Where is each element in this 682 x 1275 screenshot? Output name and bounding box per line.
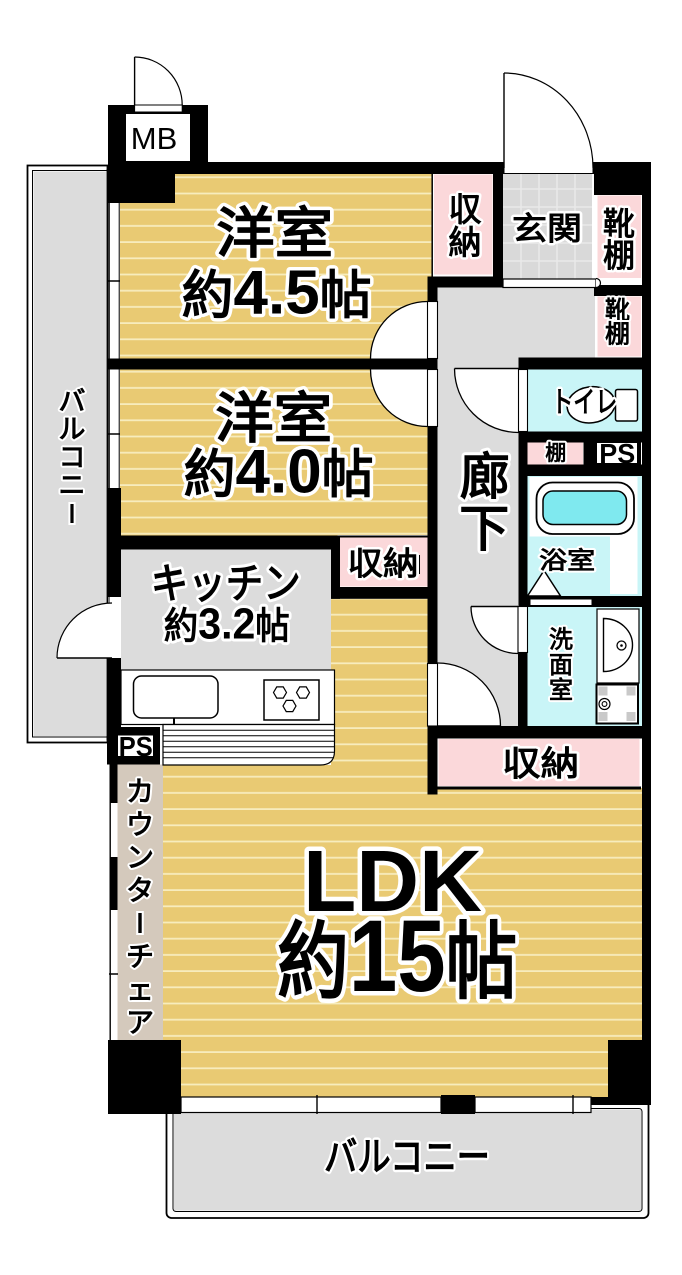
svg-text:納: 納 bbox=[449, 224, 482, 261]
svg-text:ル: ル bbox=[59, 415, 86, 445]
svg-text:洗: 洗 bbox=[549, 627, 573, 654]
svg-text:MB: MB bbox=[131, 121, 178, 156]
svg-text:ン: ン bbox=[126, 842, 154, 873]
svg-text:棚: 棚 bbox=[603, 238, 635, 274]
svg-text:約4.5帖: 約4.5帖 bbox=[182, 259, 372, 328]
svg-text:浴室: 浴室 bbox=[539, 546, 595, 574]
svg-text:ア: ア bbox=[126, 1007, 154, 1038]
svg-text:トイレ: トイレ bbox=[551, 387, 617, 419]
svg-text:棚: 棚 bbox=[605, 321, 630, 349]
svg-text:下: 下 bbox=[459, 501, 509, 557]
svg-text:室: 室 bbox=[549, 676, 573, 704]
svg-text:PS: PS bbox=[599, 438, 635, 469]
svg-text:バ: バ bbox=[59, 387, 86, 417]
svg-text:棚: 棚 bbox=[545, 441, 566, 465]
svg-text:約3.2帖: 約3.2帖 bbox=[164, 600, 290, 649]
svg-text:PS: PS bbox=[119, 731, 153, 762]
svg-text:ェ: ェ bbox=[126, 974, 154, 1005]
svg-text:面: 面 bbox=[549, 652, 573, 679]
svg-text:玄関: 玄関 bbox=[512, 210, 582, 246]
svg-text:カ: カ bbox=[126, 776, 154, 807]
svg-text:コ: コ bbox=[59, 443, 86, 473]
svg-text:約4.0帖: 約4.0帖 bbox=[184, 438, 374, 507]
svg-text:ニ: ニ bbox=[59, 471, 86, 501]
svg-text:洋室: 洋室 bbox=[216, 202, 333, 264]
svg-text:収納: 収納 bbox=[348, 546, 419, 582]
svg-text:チ: チ bbox=[126, 941, 154, 972]
svg-text:約15帖: 約15帖 bbox=[277, 899, 517, 1013]
svg-text:収納: 収納 bbox=[502, 746, 579, 784]
svg-text:バルコニー: バルコニー bbox=[324, 1135, 490, 1179]
svg-text:収: 収 bbox=[449, 191, 483, 228]
svg-text:タ: タ bbox=[126, 875, 154, 906]
svg-text:廊: 廊 bbox=[460, 449, 510, 505]
svg-text:ウ: ウ bbox=[126, 809, 154, 840]
